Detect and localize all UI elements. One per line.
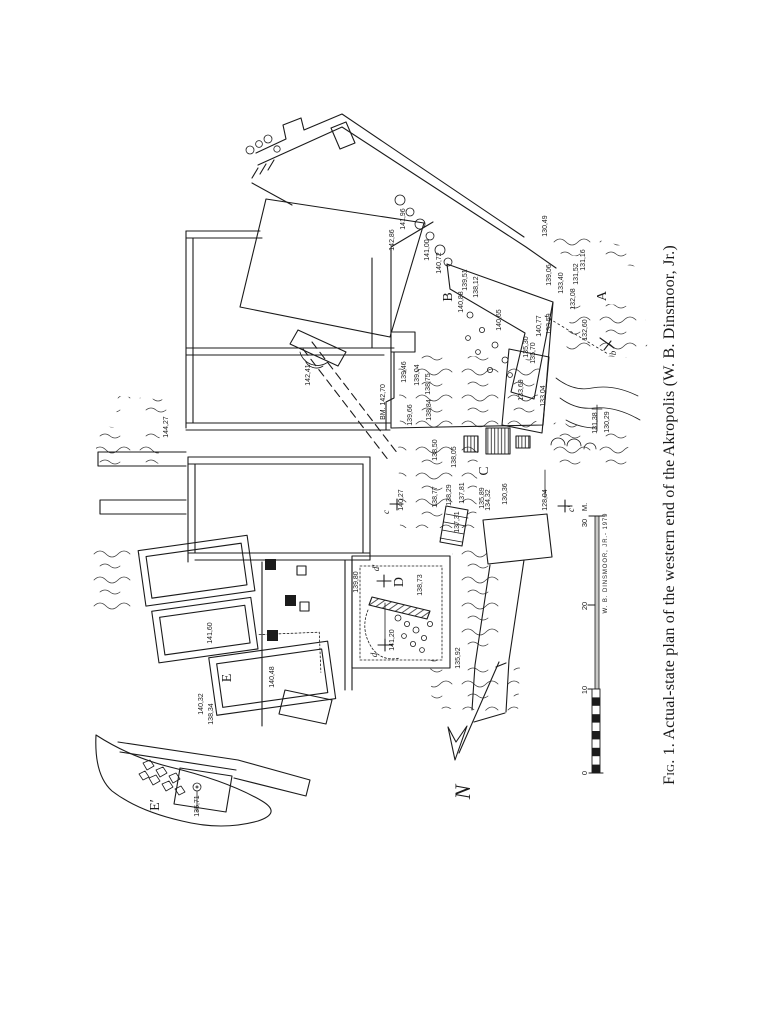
steps-to-terrace [279,690,332,724]
elevation-label: 139,06 [546,264,553,286]
north-wall [252,114,556,268]
elevation-label: 131,38 [592,412,599,434]
elevation-label: 137,81 [459,482,466,504]
elevation-label: 140,27 [398,489,405,511]
area-letter: E [220,674,235,683]
corridor-walls [262,560,352,726]
elevation-label: 128,04 [542,489,549,511]
scale-tick-label: 20 [580,602,589,610]
elevation-label: 140,32 [198,693,205,715]
elevation-label: 135,92 [455,647,462,669]
elevation-label: 130,29 [604,411,611,433]
elevation-label: 142,41 [305,364,312,386]
scale-unit-label: M. [580,503,589,511]
elevation-label: 141,00 [424,239,431,261]
elevation-label: BM. 142,70 [380,384,387,420]
elevation-label: 131,52 [573,263,580,285]
section-marker-label: d′ [371,564,381,572]
elevation-label: 138,77 [432,486,439,508]
section-marker-label: c [381,510,391,514]
figure-number: Fig. 1. [661,743,678,785]
elevation-label: 133,40 [558,272,565,294]
elevation-label: 138,75 [425,373,432,395]
area-letter: E′ [148,799,163,811]
elevation-label: 130,36 [502,483,509,505]
elevation-label: 141,96 [400,208,407,230]
area-letter: B [441,292,456,301]
elevation-label: 140,88 [458,291,465,313]
elevation-label: 138,05 [451,446,458,468]
southwest-rooms [138,526,336,723]
column-plinths [265,559,309,641]
elevation-label: 138,50 [432,439,439,461]
elevation-label: 132,08 [570,288,577,310]
elevation-label: 140,77 [536,315,543,337]
elevation-label: 139,51 [462,269,469,291]
elevation-label: 135,70 [530,342,537,364]
area-d-enclosure [352,556,450,668]
elevation-label: 139,80 [353,571,360,593]
section-marker-label: b [608,350,618,355]
promontory [96,735,310,826]
elevation-label: 139,66 [407,404,414,426]
area-letter: A [595,290,610,301]
surveyor-signature: W. B. DINSMOOR, JR.- 1979 [603,513,609,614]
elevation-label: 137,31 [454,511,461,533]
section-marker-label: c′ [566,505,576,512]
figure-caption: Fig. 1. Actual-state plan of the western… [661,135,685,895]
elevation-label: 138,12 [473,276,480,298]
elevation-label: 138,84 [426,399,433,421]
rubble-bastion [240,199,424,337]
elevation-label: 133,69 [518,379,525,401]
elevation-label: 144,27 [163,416,170,438]
north-label: N [450,783,475,800]
area-d-stones [395,615,433,652]
section-marker-label: d [369,652,379,657]
scale-tick-label: 30 [580,519,589,527]
scale-tick-label: 10 [580,686,589,694]
area-letter: D [392,577,407,587]
elevation-label: 133,04 [540,385,547,407]
elevation-label: 140,72 [436,252,443,274]
rock-texture [88,228,648,712]
elevation-label: 139,04 [414,364,421,386]
elevation-label: 132,60 [582,319,589,341]
elevation-label: 138,73 [417,574,424,596]
scale-tick-label: 0 [580,771,589,775]
elevation-label: 131,16 [580,249,587,271]
central-building [186,231,394,562]
scanned-page: 142,86141,96141,00140,72139,51138,12130,… [0,0,762,1024]
elevation-label: 140,65 [496,309,503,331]
elevation-label: 138,29 [446,484,453,506]
elevation-label: 141,20 [389,629,396,651]
scale-tick-labels: 0102030 [580,519,589,775]
elevation-label: 135,30 [523,336,530,358]
figure-caption-text: Actual-state plan of the western end of … [661,245,678,743]
elevation-label: 142,86 [389,229,396,251]
elevation-label: 138,34 [208,703,215,725]
elevation-label: 134,32 [485,489,492,511]
elevation-label: 141,60 [207,622,214,644]
area-letter: C [477,466,492,475]
elevation-label: 135,71 [194,795,201,817]
elevation-label: 140,48 [269,666,276,688]
elevation-label: 139,46 [401,361,408,383]
elevation-label: 133,59 [546,313,553,335]
elevation-label: 130,49 [542,215,549,237]
site-plan-drawing: 142,86141,96141,00140,72139,51138,12130,… [0,0,762,1024]
